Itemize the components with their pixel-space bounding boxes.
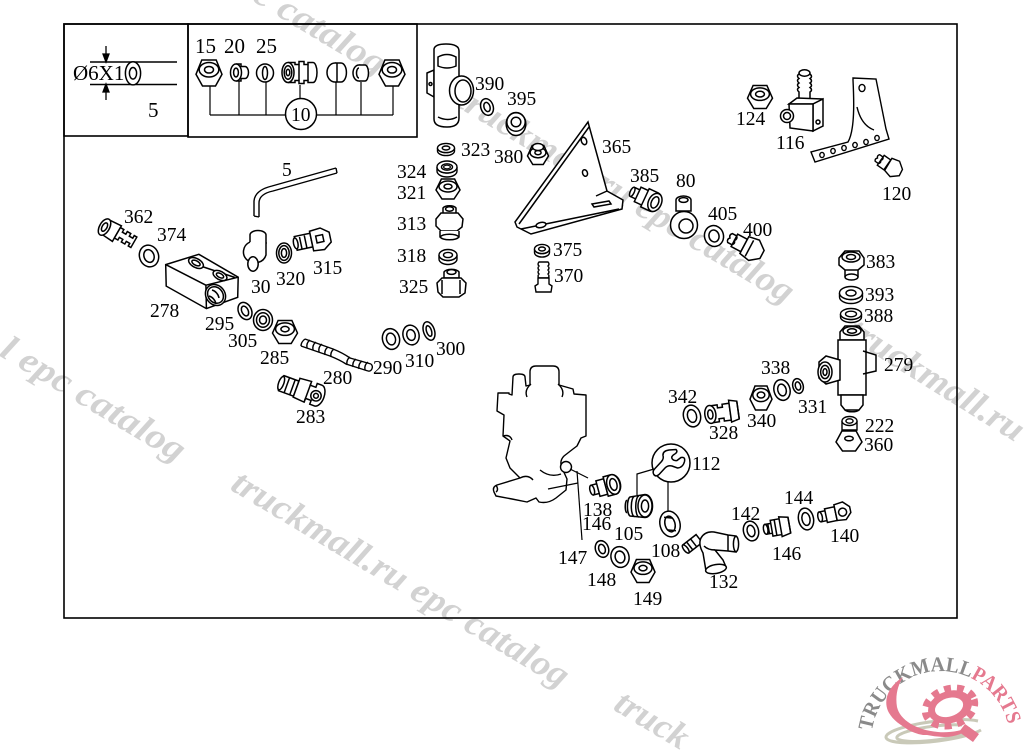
svg-text:360: 360 — [864, 435, 893, 456]
svg-text:395: 395 — [507, 89, 536, 110]
svg-text:30: 30 — [251, 277, 271, 298]
svg-text:375: 375 — [553, 240, 582, 261]
svg-text:15: 15 — [195, 34, 216, 58]
svg-text:116: 116 — [776, 133, 805, 154]
svg-text:318: 318 — [397, 246, 426, 267]
svg-text:142: 142 — [731, 504, 760, 525]
svg-text:285: 285 — [260, 348, 289, 369]
svg-text:321: 321 — [397, 183, 426, 204]
svg-text:370: 370 — [554, 266, 583, 287]
svg-text:278: 278 — [150, 301, 179, 322]
svg-text:310: 310 — [405, 351, 434, 372]
svg-text:338: 338 — [761, 358, 790, 379]
svg-text:325: 325 — [399, 277, 428, 298]
svg-text:342: 342 — [668, 387, 697, 408]
svg-text:25: 25 — [256, 34, 277, 58]
svg-text:146: 146 — [772, 544, 802, 565]
svg-text:Ø6X1: Ø6X1 — [73, 61, 124, 85]
svg-text:20: 20 — [224, 34, 245, 58]
svg-text:324: 324 — [397, 162, 427, 183]
svg-text:323: 323 — [461, 140, 490, 161]
svg-text:144: 144 — [784, 488, 814, 509]
svg-text:124: 124 — [736, 109, 766, 130]
svg-text:385: 385 — [630, 166, 659, 187]
svg-text:5: 5 — [148, 98, 159, 122]
svg-text:149: 149 — [633, 589, 662, 610]
svg-text:390: 390 — [475, 74, 504, 95]
svg-text:283: 283 — [296, 407, 325, 428]
svg-text:400: 400 — [743, 220, 772, 241]
svg-text:5: 5 — [282, 160, 292, 181]
svg-text:148: 148 — [587, 570, 616, 591]
svg-text:105: 105 — [614, 524, 643, 545]
svg-text:388: 388 — [864, 306, 893, 327]
svg-text:10: 10 — [291, 105, 311, 126]
svg-text:120: 120 — [882, 184, 911, 205]
svg-text:383: 383 — [866, 252, 895, 273]
svg-text:290: 290 — [373, 358, 402, 379]
svg-text:313: 313 — [397, 214, 426, 235]
svg-text:279: 279 — [884, 355, 913, 376]
svg-text:147: 147 — [558, 548, 588, 569]
svg-text:362: 362 — [124, 207, 153, 228]
svg-text:280: 280 — [323, 368, 352, 389]
svg-text:108: 108 — [651, 541, 680, 562]
svg-text:140: 140 — [830, 526, 859, 547]
svg-text:331: 331 — [798, 397, 827, 418]
svg-text:112: 112 — [692, 454, 721, 475]
svg-text:300: 300 — [436, 339, 465, 360]
svg-text:80: 80 — [676, 171, 696, 192]
svg-text:365: 365 — [602, 137, 631, 158]
svg-text:146: 146 — [582, 514, 612, 535]
svg-text:305: 305 — [228, 331, 257, 352]
svg-text:393: 393 — [865, 285, 894, 306]
svg-text:132: 132 — [709, 572, 738, 593]
svg-text:315: 315 — [313, 258, 342, 279]
svg-text:405: 405 — [708, 204, 737, 225]
svg-text:374: 374 — [157, 225, 187, 246]
svg-text:340: 340 — [747, 411, 776, 432]
svg-text:328: 328 — [709, 423, 738, 444]
svg-text:320: 320 — [276, 269, 305, 290]
svg-text:380: 380 — [494, 147, 523, 168]
svg-text:222: 222 — [865, 416, 894, 437]
